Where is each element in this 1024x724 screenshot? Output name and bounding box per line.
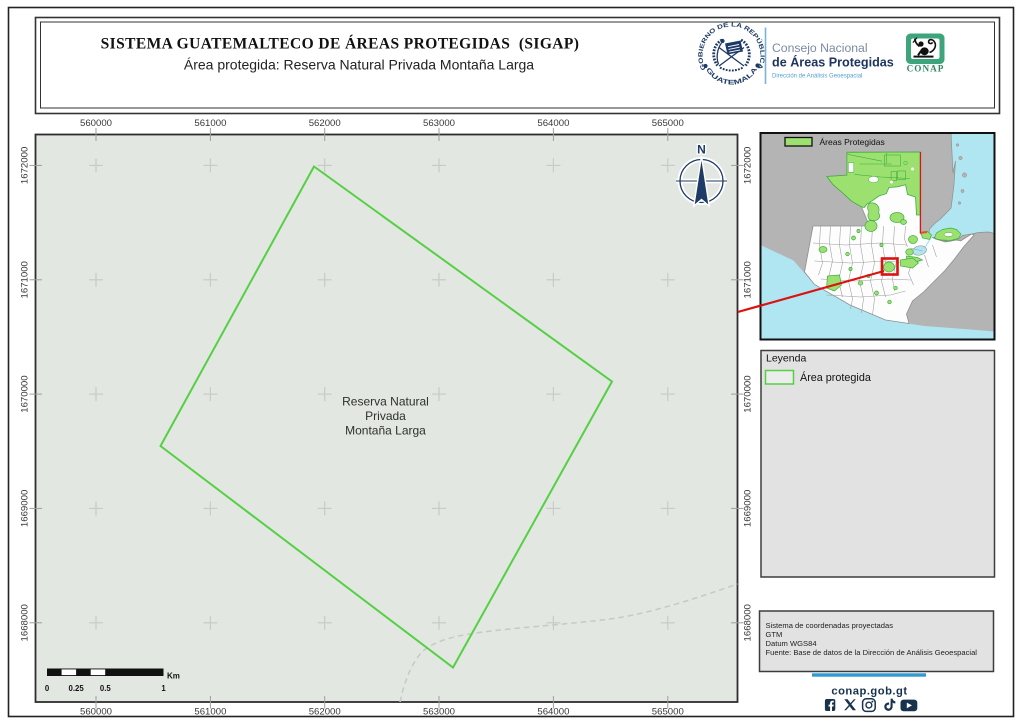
svg-text:563000: 563000 [423,707,455,718]
svg-text:562000: 562000 [309,707,341,718]
svg-text:Km: Km [167,672,180,681]
svg-text:N: N [697,143,706,157]
svg-text:1672000: 1672000 [20,147,31,184]
svg-text:de Áreas Protegidas: de Áreas Protegidas [772,55,894,70]
svg-text:562000: 562000 [309,118,341,129]
svg-text:Área protegida: Área protegida [800,371,871,384]
svg-text:565000: 565000 [652,118,684,129]
svg-text:1668000: 1668000 [743,604,754,641]
svg-text:563000: 563000 [423,118,455,129]
svg-text:1669000: 1669000 [20,490,31,527]
svg-text:564000: 564000 [537,118,569,129]
svg-text:Consejo Nacional: Consejo Nacional [772,41,868,55]
svg-text:560000: 560000 [80,707,112,718]
svg-text:Datum WGS84: Datum WGS84 [766,639,817,648]
svg-text:1671000: 1671000 [20,261,31,298]
svg-text:Montaña Larga: Montaña Larga [345,424,426,438]
svg-text:Dirección de Análisis Geoespac: Dirección de Análisis Geoespacial [772,74,862,80]
svg-text:565000: 565000 [652,707,684,718]
svg-text:564000: 564000 [537,707,569,718]
svg-text:561000: 561000 [194,707,226,718]
svg-text:GTM: GTM [766,630,783,639]
svg-text:Reserva Natural: Reserva Natural [342,395,429,409]
svg-text:1672000: 1672000 [743,147,754,184]
svg-text:0.5: 0.5 [100,684,112,693]
svg-text:Áreas Protegidas: Áreas Protegidas [820,137,885,147]
svg-text:560000: 560000 [80,118,112,129]
svg-text:1670000: 1670000 [20,375,31,412]
svg-text:CONAP: CONAP [907,64,945,74]
svg-text:1669000: 1669000 [743,490,754,527]
svg-text:Privada: Privada [365,409,406,423]
svg-text:Área protegida: Reserva Natura: Área protegida: Reserva Natural Privada … [184,57,534,73]
svg-text:1: 1 [161,684,166,693]
svg-text:1668000: 1668000 [20,604,31,641]
svg-text:0: 0 [45,684,50,693]
svg-text:1671000: 1671000 [743,261,754,298]
svg-text:1670000: 1670000 [743,375,754,412]
svg-text:Sistema de coordenadas proyect: Sistema de coordenadas proyectadas [766,621,894,630]
svg-text:Fuente: Base de datos de la Di: Fuente: Base de datos de la Dirección de… [766,648,978,657]
svg-text:0.25: 0.25 [69,684,85,693]
svg-text:SISTEMA GUATEMALTECO DE ÁREAS: SISTEMA GUATEMALTECO DE ÁREAS PROTEGIDAS… [101,36,580,53]
svg-text:561000: 561000 [194,118,226,129]
svg-text:conap.gob.gt: conap.gob.gt [831,686,907,698]
svg-text:Leyenda: Leyenda [766,353,806,365]
